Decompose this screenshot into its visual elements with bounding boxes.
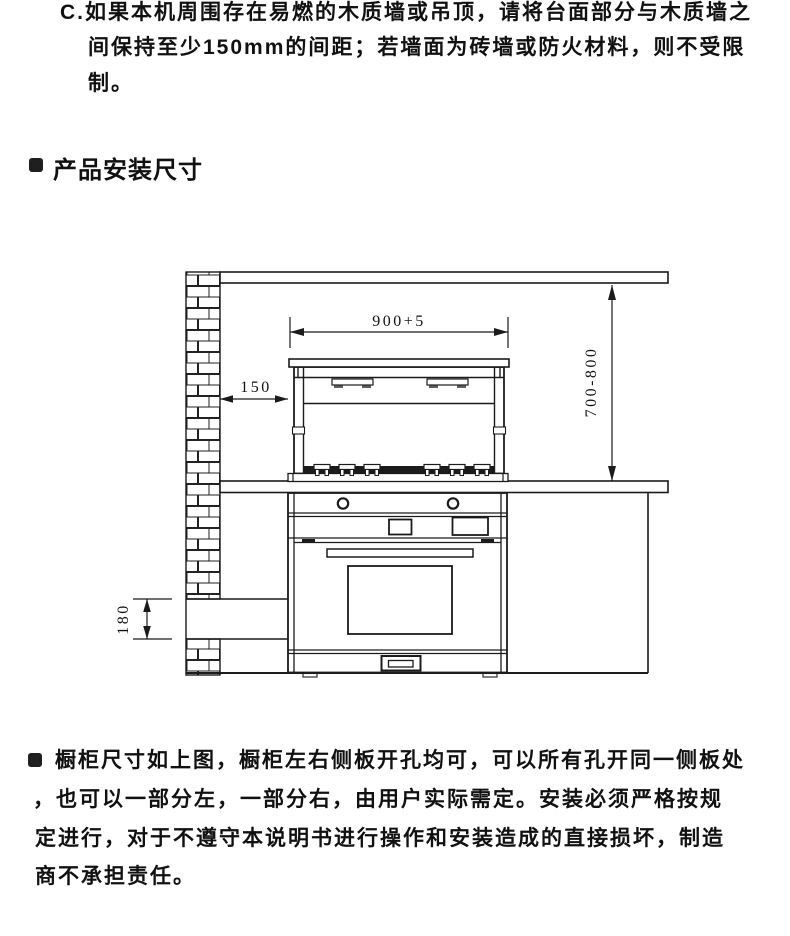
dim-label-hood-height: 700-800 [583,347,600,418]
dimension-hood-height: 700-800 [583,285,616,481]
dimension-cutout-width: 900+5 [290,313,508,348]
range-hood [288,359,509,482]
bottom-note-line-4: 商不承担责任。 [35,865,196,889]
control-panel [453,518,489,536]
control-knob [338,498,348,508]
note-bullet-square-icon [28,753,42,767]
bottom-note-line-2: ，也可以一部分左，一部分右，由用户实际需定。安装必须严格按规 [33,788,723,812]
control-knob [448,498,458,508]
dimension-outlet-height: 180 [115,599,172,639]
dimension-wall-clearance: 150 [220,379,288,403]
ceiling-panel [220,272,668,283]
manual-page: { "colors": { "ink": "#1b1b1b", "paper":… [0,0,790,936]
control-display [389,520,412,535]
flue-outlet-band [186,599,288,639]
dim-label-cutout-width: 900+5 [372,313,426,330]
hood-handle-slot [427,379,468,385]
oven-door-handle [327,549,473,557]
brick-wall [186,272,220,675]
dim-label-wall-clearance: 150 [240,379,272,396]
dim-label-outlet-height: 180 [115,603,132,635]
countertop [220,481,668,493]
bottom-note-line-3: 定进行，对于不遵守本说明书进行操作和安装造成的直接损坏，制造 [35,827,725,851]
hood-handle-slot [332,379,373,385]
bottom-note-line-1: 橱柜尺寸如上图，橱柜左右侧板开孔均可，可以所有孔开同一侧板处 [55,749,745,773]
oven-door-window [348,566,452,634]
oven-unit [288,493,507,677]
